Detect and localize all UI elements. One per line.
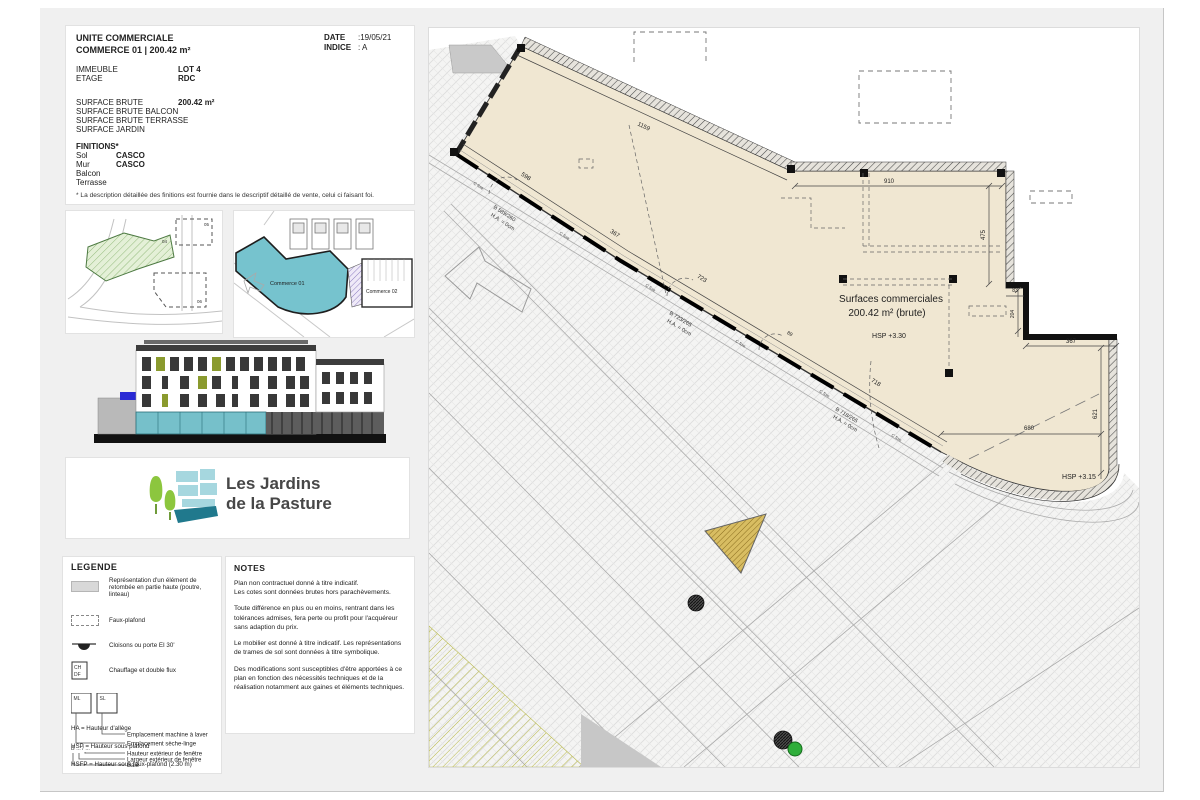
balcon-label: Balcon bbox=[76, 169, 100, 178]
logo-text: Les Jardins de la Pasture bbox=[226, 474, 332, 514]
dim-621: 621 bbox=[1093, 408, 1099, 419]
notes-paragraph: Le mobilier est donné à titre indicatif.… bbox=[234, 639, 408, 657]
surface-terrasse-label: SURFACE BRUTE TERRASSE bbox=[76, 116, 188, 125]
immeuble-label: IMMEUBLE bbox=[76, 65, 118, 74]
surface-balcon-label: SURFACE BRUTE BALCON bbox=[76, 107, 178, 116]
room-hsp-2: HSP +3.15 bbox=[1062, 474, 1096, 481]
indice-label: INDICE bbox=[324, 43, 351, 52]
commerce01-label: Commerce 01 bbox=[270, 281, 305, 287]
key-plan-drawing: Commerce 01 Commerce 02 bbox=[234, 211, 414, 337]
lot-06-label: 06 bbox=[197, 299, 203, 304]
key-plan-commerce02-block bbox=[362, 259, 412, 307]
heating-symbol: CH DF bbox=[71, 661, 89, 681]
notes-paragraph: Plan non contractuel donné à titre indic… bbox=[234, 579, 408, 597]
finitions-title: FINITIONS* bbox=[76, 142, 119, 151]
date-value: :19/05/21 bbox=[358, 33, 391, 42]
room-name: Surfaces commerciales bbox=[839, 294, 943, 305]
notes-body: Plan non contractuel donné à titre indic… bbox=[234, 579, 408, 699]
beam-symbol bbox=[71, 581, 99, 592]
dim-367-right: 367 bbox=[1066, 339, 1077, 345]
abbr-hsfp: HSFP = Hauteur sous faux-plafond (2.30 m… bbox=[71, 761, 217, 768]
drawing-sheet: UNITE COMMERCIALE COMMERCE 01 | 200.42 m… bbox=[40, 8, 1164, 792]
lot-04-label: 04 bbox=[162, 239, 168, 244]
leader-machine: Emplacement machine à laver bbox=[127, 733, 208, 739]
dim-680: 680 bbox=[1024, 426, 1035, 432]
tree-circle-green bbox=[788, 742, 802, 756]
etage-label: ETAGE bbox=[76, 74, 103, 83]
surface-brute-label: SURFACE BRUTE bbox=[76, 98, 143, 107]
tree-circle-1 bbox=[688, 595, 704, 611]
heating-df-text: DF bbox=[74, 672, 81, 678]
logo-icon bbox=[148, 468, 218, 530]
unit-info-panel: UNITE COMMERCIALE COMMERCE 01 | 200.42 m… bbox=[65, 25, 415, 205]
legend-title: LEGENDE bbox=[71, 562, 117, 572]
unit-subtitle: COMMERCE 01 | 200.42 m² bbox=[76, 45, 191, 55]
room-area: 200.42 m² (brute) bbox=[848, 308, 925, 319]
mur-value: CASCO bbox=[116, 160, 145, 169]
dim-83: 83 bbox=[1012, 288, 1018, 294]
logo-blocks bbox=[176, 469, 217, 507]
legend-item-beam: Représentation d'un élément de retombée … bbox=[109, 577, 215, 598]
notes-paragraph: Des modifications sont susceptibles d'êt… bbox=[234, 665, 408, 693]
notes-line-2: Les cotes sont données brutes hors parac… bbox=[234, 589, 391, 596]
logo-tree-small bbox=[165, 490, 176, 511]
mur-label: Mur bbox=[76, 160, 90, 169]
floor-plan-area: 1159 910 475 83 204 367 621 680 598 367 … bbox=[428, 27, 1140, 768]
heating-ch-text: CH bbox=[74, 665, 82, 671]
site-plan-overview: 04 05 06 bbox=[65, 210, 223, 334]
surface-brute-value: 200.42 m² bbox=[178, 98, 214, 107]
sl-box-label: SL bbox=[100, 696, 106, 702]
fire-door-symbol bbox=[71, 639, 97, 651]
sol-label: Sol bbox=[76, 151, 88, 160]
dim-204: 204 bbox=[1010, 310, 1016, 319]
logo-line1: Les Jardins bbox=[226, 474, 332, 494]
site-plan-overview-drawing: 04 05 06 bbox=[66, 211, 222, 333]
date-label: DATE bbox=[324, 33, 345, 42]
immeuble-value: LOT 4 bbox=[178, 65, 201, 74]
elevation-drawing bbox=[92, 336, 402, 448]
etage-value: RDC bbox=[178, 74, 195, 83]
logo-tree-large bbox=[150, 476, 163, 502]
ml-box-label: ML bbox=[74, 696, 81, 702]
abbr-hsp: HSP = Hauteur sous plafond bbox=[71, 743, 217, 750]
legend-item-false-ceiling: Faux-plafond bbox=[109, 617, 215, 624]
notes-panel: NOTES Plan non contractuel donné à titre… bbox=[225, 556, 415, 734]
notes-paragraph: Toute différence en plus ou en moins, re… bbox=[234, 604, 408, 632]
notes-title: NOTES bbox=[234, 563, 265, 573]
sol-value: CASCO bbox=[116, 151, 145, 160]
key-plan-upper-units bbox=[290, 219, 373, 249]
building-elevation bbox=[92, 336, 402, 448]
indice-value: : A bbox=[358, 43, 367, 52]
site-dashed-lots bbox=[154, 219, 212, 307]
dim-910: 910 bbox=[884, 179, 895, 185]
notes-line-1: Plan non contractuel donné à titre indic… bbox=[234, 580, 359, 587]
dim-475: 475 bbox=[981, 229, 987, 240]
commerce02-label: Commerce 02 bbox=[366, 289, 398, 295]
room-hsp: HSP +3.30 bbox=[872, 333, 906, 340]
site-building-footprint bbox=[86, 233, 174, 281]
unit-title: UNITE COMMERCIALE bbox=[76, 33, 174, 43]
legend-item-door: Cloisons ou porte EI 30' bbox=[109, 642, 215, 649]
abbr-ha: HA = Hauteur d'allège bbox=[71, 725, 217, 732]
key-plan: Commerce 01 Commerce 02 bbox=[233, 210, 415, 338]
surface-jardin-label: SURFACE JARDIN bbox=[76, 125, 145, 134]
finitions-footnote: * La description détaillée des finitions… bbox=[76, 192, 406, 199]
lot-05-label: 05 bbox=[204, 222, 210, 227]
logo-line2: de la Pasture bbox=[226, 494, 332, 514]
floor-plan-drawing: 1159 910 475 83 204 367 621 680 598 367 … bbox=[429, 28, 1139, 767]
logo-base bbox=[174, 506, 218, 523]
logo-panel: Les Jardins de la Pasture bbox=[65, 457, 410, 539]
legend-leader-lines bbox=[73, 713, 125, 765]
legend-panel: LEGENDE Représentation d'un élément de r… bbox=[62, 556, 222, 774]
terrasse-label: Terrasse bbox=[76, 178, 107, 187]
false-ceiling-symbol bbox=[71, 615, 99, 626]
legend-item-heating: Chauffage et double flux bbox=[109, 667, 215, 674]
